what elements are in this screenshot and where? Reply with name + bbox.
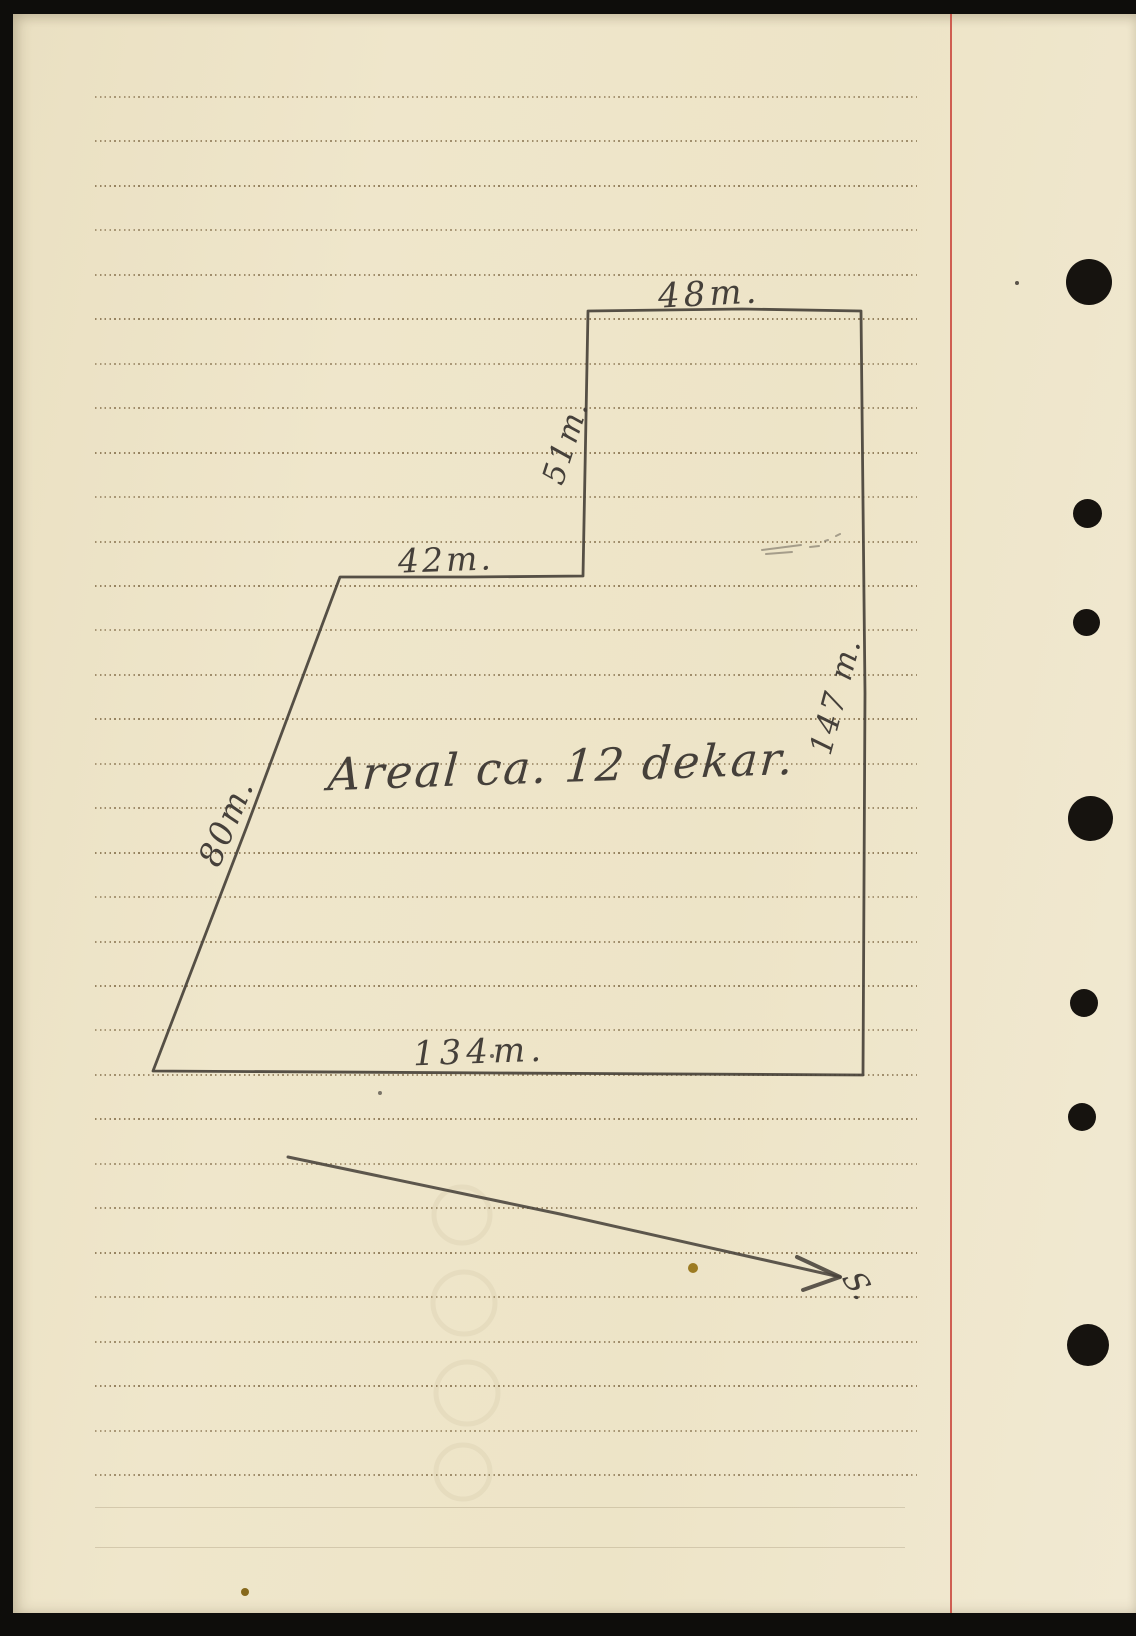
paper-speck xyxy=(490,1054,494,1058)
ruled-line xyxy=(95,1252,917,1254)
punch-hole xyxy=(1066,259,1112,305)
punch-hole xyxy=(1073,499,1102,528)
punch-hole xyxy=(1068,1103,1096,1131)
red-margin-line xyxy=(950,14,952,1613)
ruled-line xyxy=(95,718,917,720)
paper-speck xyxy=(378,1091,382,1095)
label-top-edge-48m: 48m. xyxy=(657,271,761,316)
punch-hole xyxy=(1070,989,1098,1017)
ruled-line xyxy=(95,1341,917,1343)
ruled-line xyxy=(95,1430,917,1432)
paper-speck xyxy=(241,1588,249,1596)
label-bottom-edge-134m: 134m. xyxy=(412,1030,546,1075)
ruled-line xyxy=(95,1385,917,1387)
faint-ruled-line xyxy=(95,1507,905,1508)
punch-hole xyxy=(1073,609,1100,636)
ruled-line xyxy=(95,407,917,409)
ruled-line xyxy=(95,1474,917,1476)
ruled-line xyxy=(95,1207,917,1209)
paper-speck xyxy=(688,1263,698,1273)
ruled-line xyxy=(95,318,917,320)
ruled-line xyxy=(95,629,917,631)
ruled-line xyxy=(95,985,917,987)
ruled-line xyxy=(95,185,917,187)
ruled-line xyxy=(95,896,917,898)
ruled-line xyxy=(95,229,917,231)
ruled-line xyxy=(95,452,917,454)
punch-hole xyxy=(1067,1324,1109,1366)
ruled-line xyxy=(95,96,917,98)
notebook-paper xyxy=(13,14,1136,1613)
ruled-line xyxy=(95,496,917,498)
faint-ruled-line xyxy=(95,1547,905,1548)
ruled-line xyxy=(95,541,917,543)
scanned-notebook-page: 48m. 51m. 42m. 147 m. 80m. 134m. Areal c… xyxy=(0,0,1136,1636)
ruled-line xyxy=(95,274,917,276)
punch-hole xyxy=(1068,796,1113,841)
ruled-line xyxy=(95,140,917,142)
ruled-line xyxy=(95,363,917,365)
ruled-line xyxy=(95,674,917,676)
ruled-line xyxy=(95,585,917,587)
ruled-line xyxy=(95,1163,917,1165)
label-middle-edge-42m: 42m. xyxy=(397,538,494,580)
ruled-line xyxy=(95,1074,917,1076)
ruled-line xyxy=(95,1118,917,1120)
paper-speck xyxy=(1015,281,1019,285)
ruled-line xyxy=(95,941,917,943)
ruled-line xyxy=(95,1296,917,1298)
